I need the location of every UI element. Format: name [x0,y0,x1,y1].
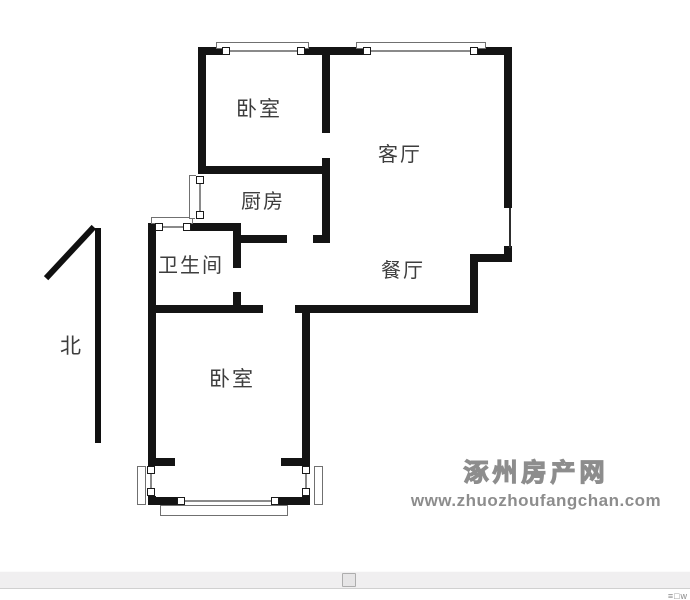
window-cap [147,488,155,496]
wall [295,305,477,313]
north-label: 北 [60,335,83,358]
wall [148,497,177,505]
room-label-dining-room: 餐厅 [381,260,425,282]
wall [198,47,206,173]
window-frame [137,466,146,505]
wall [504,47,512,208]
window-sill [160,505,288,516]
wall [198,166,330,174]
wall [236,235,287,243]
window-cap [297,47,305,55]
window [177,497,279,505]
watermark-site-name: 涿州房产网 [408,453,664,489]
window [222,47,305,55]
wall [156,458,175,466]
page: 北 卧室 客厅 厨房 卫生间 餐厅 卧室 涿州房产网 www.zhuozhouf… [0,0,690,600]
wall [302,313,310,467]
room-label-bedroom-top: 卧室 [236,98,282,121]
scrollbar-thumb[interactable] [342,573,356,587]
room-label-bathroom: 卫生间 [158,255,224,277]
window-frame [314,466,323,505]
window-cap [470,47,478,55]
window-cap [302,466,310,474]
north-arrow [95,228,101,443]
window-cap [363,47,371,55]
watermark-url: www.zhuozhoufangchan.com [408,491,664,511]
window-cap [222,47,230,55]
door-opening-line [509,208,511,248]
wall [313,235,330,243]
window-cap [302,488,310,496]
window-cap [183,223,191,231]
wall [148,305,263,313]
status-corner-glyphs: ≡□w [668,591,688,600]
room-label-living-room: 客厅 [378,144,422,166]
wall [322,158,330,243]
window-cap [271,497,279,505]
window-cap [177,497,185,505]
window-cap [196,211,204,219]
window [363,47,478,55]
horizontal-scrollbar[interactable] [0,571,690,589]
wall [233,292,241,305]
wall [148,223,156,467]
wall [322,47,330,133]
wall [281,458,302,466]
watermark: 涿州房产网 www.zhuozhoufangchan.com [408,453,664,511]
north-arrow-head [44,225,96,280]
floor-plan: 北 卧室 客厅 厨房 卫生间 餐厅 卧室 涿州房产网 www.zhuozhouf… [0,0,690,600]
room-label-kitchen: 厨房 [241,191,285,213]
window-cap [147,466,155,474]
window-cap [196,176,204,184]
window-cap [155,223,163,231]
room-label-bedroom-bottom: 卧室 [209,368,255,391]
